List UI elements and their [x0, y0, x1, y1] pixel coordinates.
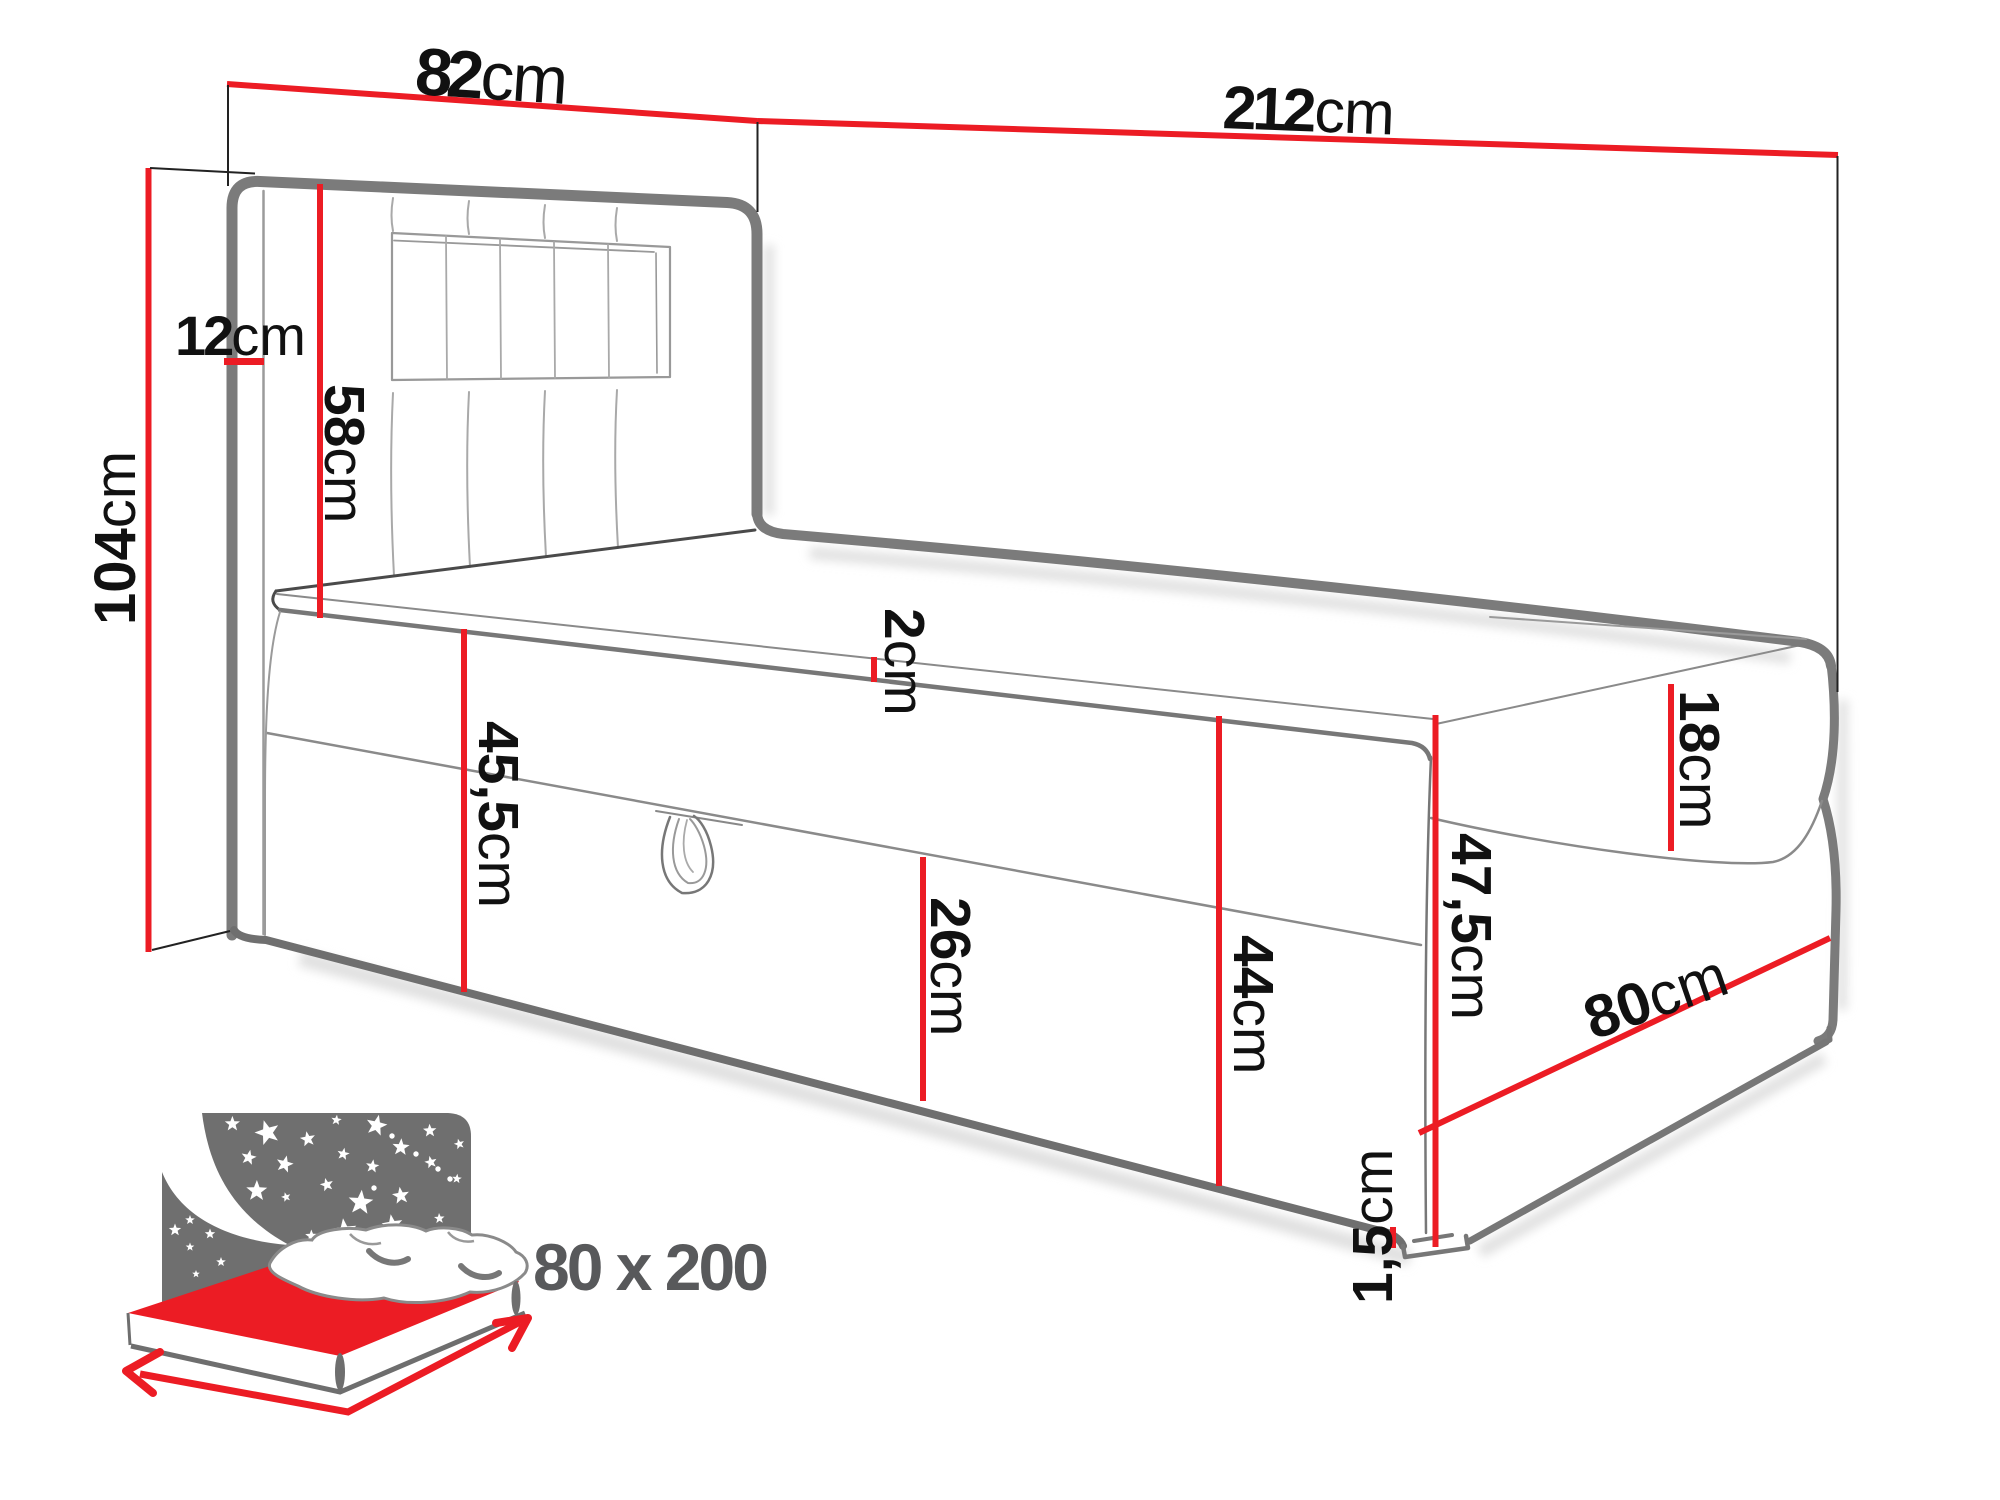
svg-text:58cm: 58cm — [312, 384, 376, 523]
svg-text:80 x 200: 80 x 200 — [533, 1230, 766, 1304]
svg-text:2cm: 2cm — [872, 608, 936, 716]
svg-text:212cm: 212cm — [1222, 73, 1396, 148]
svg-text:26cm: 26cm — [918, 897, 982, 1036]
svg-text:82cm: 82cm — [413, 34, 568, 119]
svg-text:18cm: 18cm — [1667, 690, 1731, 829]
svg-text:104cm: 104cm — [83, 451, 148, 625]
svg-text:12cm: 12cm — [175, 304, 306, 367]
svg-text:1,5cm: 1,5cm — [1341, 1149, 1405, 1304]
svg-text:44cm: 44cm — [1221, 935, 1285, 1074]
svg-text:47,5cm: 47,5cm — [1439, 833, 1503, 1020]
svg-text:45,5cm: 45,5cm — [466, 721, 530, 908]
